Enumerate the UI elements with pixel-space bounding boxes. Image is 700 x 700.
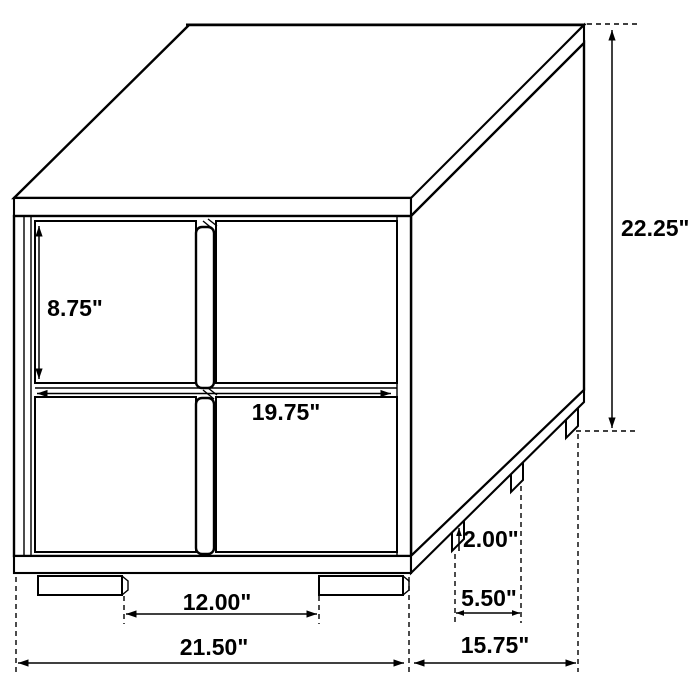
top-fascia-front xyxy=(14,198,411,216)
dim-label-side-foot-spacing: 5.50" xyxy=(461,585,517,611)
dim-label-overall-width: 21.50" xyxy=(180,634,248,660)
foot-front-left xyxy=(38,576,122,595)
dim-label-overall-depth: 15.75" xyxy=(461,632,529,658)
dim-label-front-foot-spacing: 12.00" xyxy=(183,589,251,615)
foot-front-right xyxy=(319,576,403,595)
dimension-diagram-page: 8.75" 19.75" 22.25" 2.00" 5.50" 12.00" xyxy=(0,0,700,700)
drawer-handle-bottom xyxy=(196,398,214,554)
drawer-handle-top xyxy=(196,227,214,388)
dim-label-overall-height: 22.25" xyxy=(621,215,689,241)
drawer-panel-top-right xyxy=(216,221,397,383)
base-front xyxy=(14,556,411,573)
dim-label-drawer-height: 8.75" xyxy=(47,295,103,321)
dim-label-drawer-width: 19.75" xyxy=(252,399,320,425)
drawer-panel-bottom-left xyxy=(35,397,196,552)
dim-label-foot-height: 2.00" xyxy=(463,526,519,552)
nightstand-dimension-drawing: 8.75" 19.75" 22.25" 2.00" 5.50" 12.00" xyxy=(0,0,700,700)
